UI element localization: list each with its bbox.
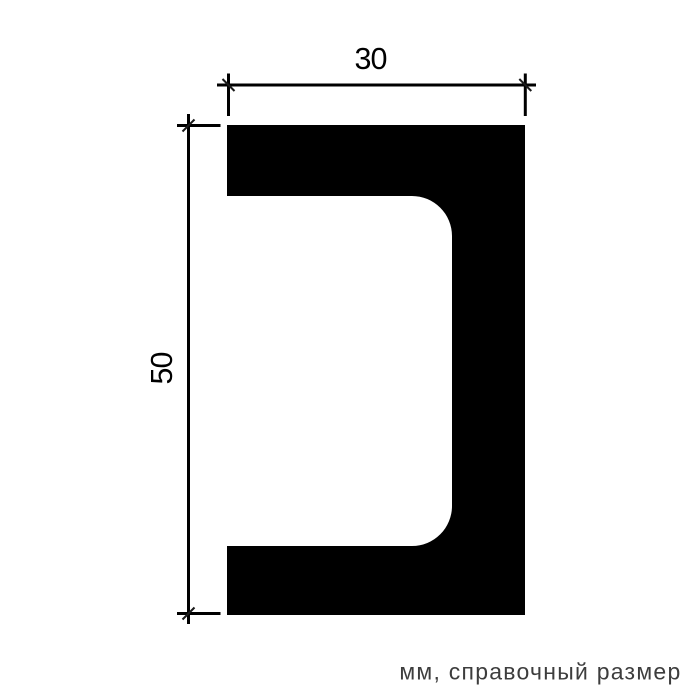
- svg-text:мм, справочный размер: мм, справочный размер: [399, 659, 681, 685]
- svg-text:50: 50: [145, 353, 179, 385]
- svg-text:30: 30: [355, 42, 387, 76]
